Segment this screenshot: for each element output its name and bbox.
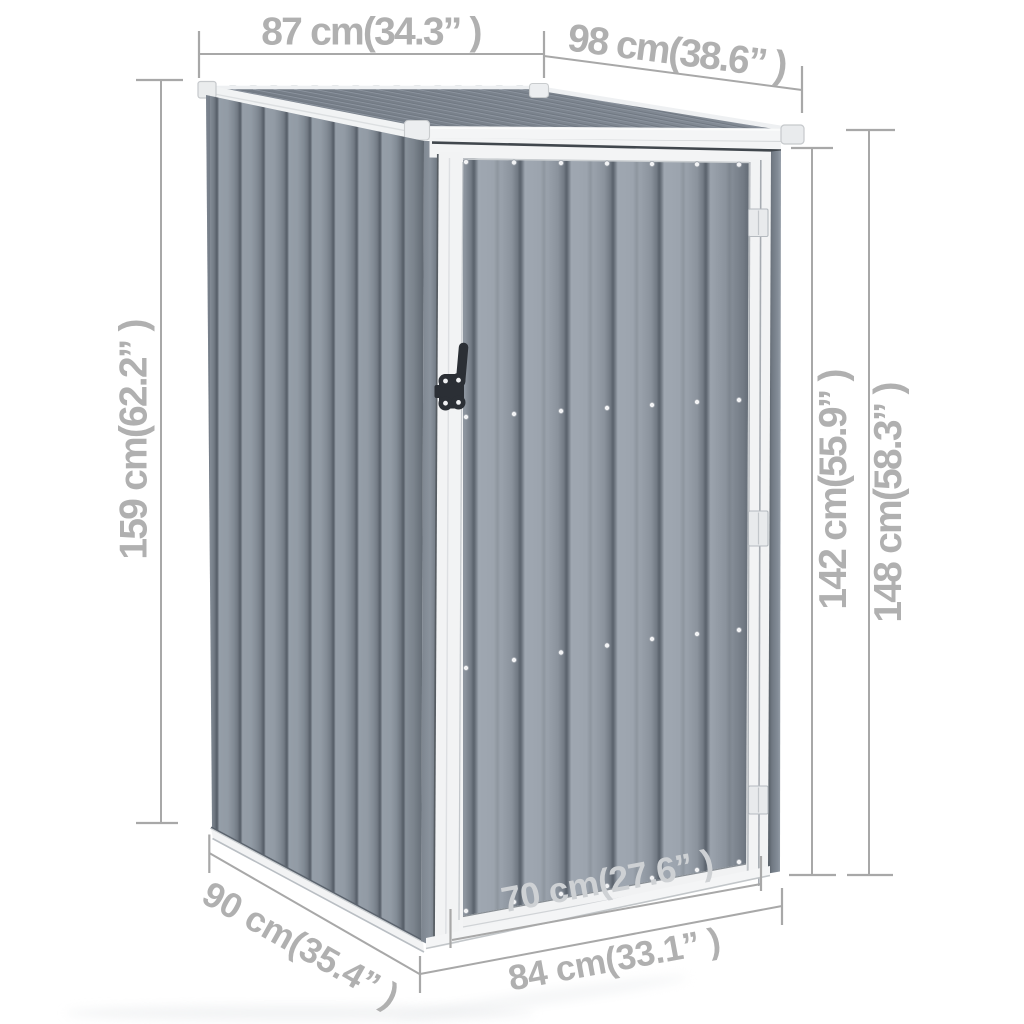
svg-text:98 cm(38.6” ): 98 cm(38.6” ) bbox=[565, 17, 789, 88]
svg-text:159 cm(62.2” ): 159 cm(62.2” ) bbox=[113, 320, 156, 560]
svg-text:87 cm(34.3” ): 87 cm(34.3” ) bbox=[261, 11, 481, 54]
svg-text:142 cm(55.9” ): 142 cm(55.9” ) bbox=[812, 370, 855, 610]
svg-text:148 cm(58.3” ): 148 cm(58.3” ) bbox=[867, 383, 910, 623]
